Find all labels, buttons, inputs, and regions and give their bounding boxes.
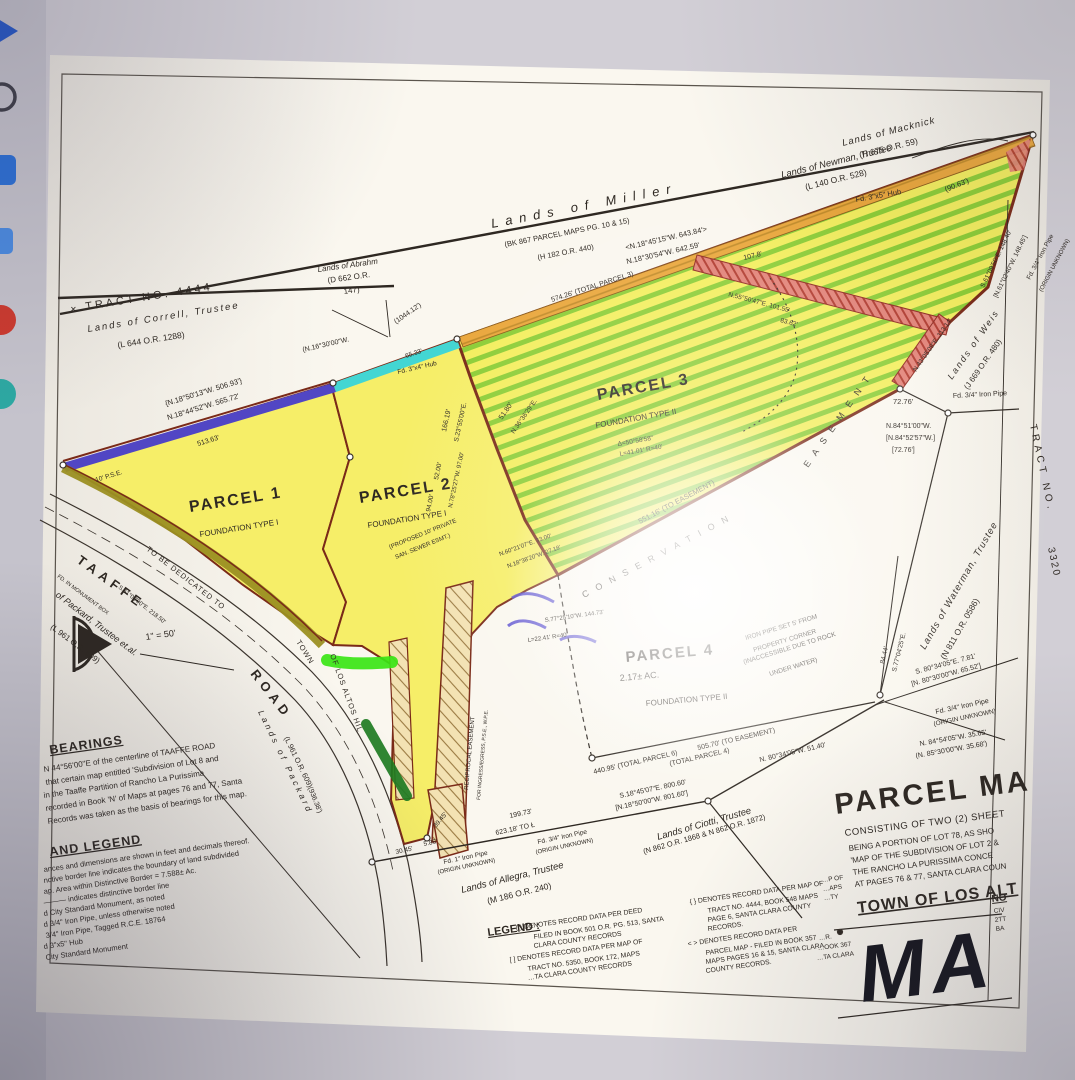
vignette-top-right <box>0 0 1075 1080</box>
screenshot-photo-of-parcel-map: PARCEL 1FOUNDATION TYPE IPARCEL 2FOUNDAT… <box>0 0 1075 1080</box>
parcel-map-canvas: PARCEL 1FOUNDATION TYPE IPARCEL 2FOUNDAT… <box>0 0 1075 1080</box>
